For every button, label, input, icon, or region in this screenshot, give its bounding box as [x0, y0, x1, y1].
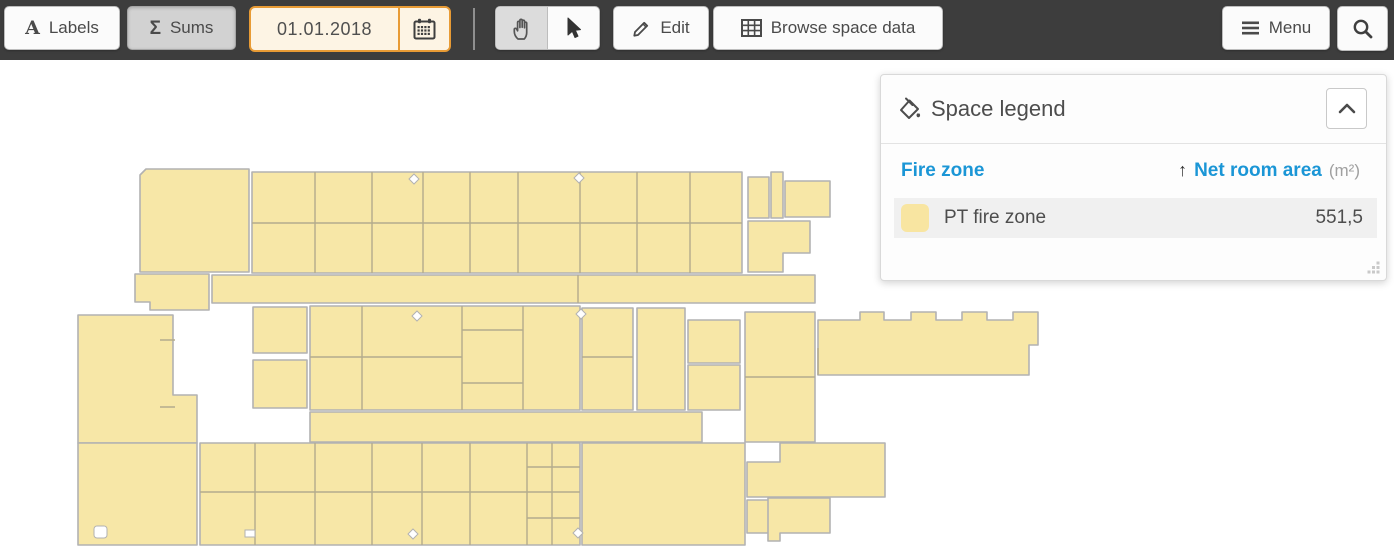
menu-button-label: Menu	[1269, 18, 1312, 38]
sums-button-label: Sums	[170, 18, 213, 38]
collapse-panel-button[interactable]	[1326, 88, 1367, 129]
browse-space-data-button[interactable]: Browse space data	[713, 6, 943, 50]
select-tool-button[interactable]	[548, 7, 599, 49]
sort-ascending-icon: ↑	[1178, 160, 1187, 181]
legend-row-pt-fire-zone[interactable]: PT fire zone 551,5	[894, 198, 1377, 238]
date-picker-group: 01.01.2018	[249, 6, 451, 52]
labels-button[interactable]: A Labels	[4, 6, 120, 50]
date-input[interactable]: 01.01.2018	[251, 8, 398, 50]
resize-grip-icon[interactable]	[1367, 261, 1380, 274]
calendar-icon	[413, 18, 436, 40]
paint-fill-icon	[897, 97, 922, 122]
labels-icon: A	[25, 19, 40, 38]
zone-color-swatch	[901, 204, 929, 232]
chevron-up-icon	[1338, 103, 1356, 114]
legend-column-net-room-area[interactable]: Net room area	[1194, 160, 1322, 182]
legend-column-unit: (m²)	[1329, 161, 1360, 181]
hamburger-icon	[1241, 20, 1260, 36]
sums-button[interactable]: Σ Sums	[127, 6, 236, 50]
legend-column-fire-zone[interactable]: Fire zone	[901, 160, 984, 182]
pencil-icon	[632, 19, 651, 38]
hand-icon	[510, 15, 534, 41]
sigma-icon: Σ	[150, 19, 161, 38]
tool-toggle-group	[495, 6, 600, 50]
toolbar-separator	[473, 8, 475, 50]
pan-tool-button[interactable]	[496, 7, 548, 49]
space-legend-header: Space legend	[881, 75, 1386, 144]
toolbar: A Labels Σ Sums 01.01.2018	[0, 0, 1394, 60]
zone-area-value: 551,5	[1315, 207, 1363, 229]
edit-button-label: Edit	[660, 18, 689, 38]
table-icon	[741, 19, 762, 37]
map-canvas[interactable]: Space legend Fire zone ↑ Net room area (…	[0, 60, 1394, 556]
cursor-icon	[564, 16, 584, 40]
menu-button[interactable]: Menu	[1222, 6, 1330, 50]
labels-button-label: Labels	[49, 18, 99, 38]
space-legend-panel: Space legend Fire zone ↑ Net room area (…	[880, 74, 1387, 281]
calendar-button[interactable]	[400, 8, 449, 50]
space-legend-title: Space legend	[931, 96, 1066, 122]
edit-button[interactable]: Edit	[613, 6, 709, 50]
zone-name: PT fire zone	[944, 207, 1046, 229]
search-icon	[1352, 18, 1374, 40]
legend-table-header: Fire zone ↑ Net room area (m²)	[881, 144, 1386, 198]
browse-space-data-label: Browse space data	[771, 18, 916, 38]
search-button[interactable]	[1337, 6, 1388, 51]
